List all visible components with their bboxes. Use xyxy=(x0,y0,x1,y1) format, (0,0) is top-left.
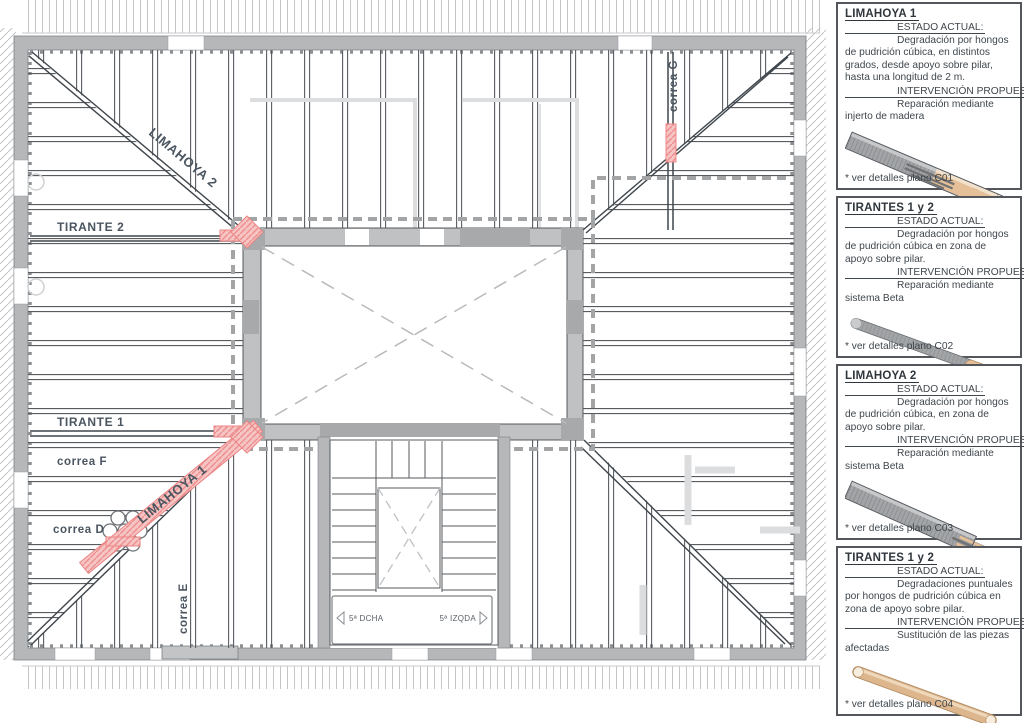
legend-card-tirantes-sustitucion: TIRANTES 1 y 2 ESTADO ACTUAL: Degradacio… xyxy=(836,546,1022,716)
estado-actual-text: Degradación por hongos de pudrición cúbi… xyxy=(845,35,1013,85)
label-correa-f: correa F xyxy=(57,456,107,468)
highlight-correa-g xyxy=(666,124,676,162)
stair-landing: 5ª DCHA 5ª IZQDA xyxy=(332,596,492,644)
beam-beta-illustration xyxy=(845,475,1015,551)
roof-plan-sheet: 5ª DCHA 5ª IZQDA LIMAHOYA 2 TIRANTE 2 TI… xyxy=(0,0,1024,689)
card-title: LIMAHOYA 2 xyxy=(845,370,919,383)
legend-card-limahoya-2: LIMAHOYA 2 ESTADO ACTUAL: Degradación po… xyxy=(836,364,1022,540)
intervencion-text: Sustitución de las piezas afectadas xyxy=(845,630,1013,655)
legend-card-limahoya-1: LIMAHOYA 1 ESTADO ACTUAL: Degradación po… xyxy=(836,2,1022,190)
highlight-correa-d xyxy=(106,537,140,546)
intervencion-heading: INTERVENCIÓN PROPUESTA: xyxy=(845,435,1024,447)
estado-actual-text: Degradaciones puntuales por hongos de pu… xyxy=(845,579,1013,616)
beam-graft-illustration xyxy=(845,126,1015,198)
card-footnote: * ver detalles plano C02 xyxy=(845,341,953,352)
card-title: LIMAHOYA 1 xyxy=(845,8,919,21)
estado-actual-heading: ESTADO ACTUAL: xyxy=(845,216,985,228)
tie-rod-beta-illustration xyxy=(845,307,1015,369)
card-footnote: * ver detalles plano C04 xyxy=(845,699,953,710)
courtyard-void-cross xyxy=(262,247,566,423)
label-tirante-1: TIRANTE 1 xyxy=(57,415,124,429)
estado-actual-text: Degradación por hongos de pudrición cúbi… xyxy=(845,397,1013,434)
intervencion-heading: INTERVENCIÓN PROPUESTA: xyxy=(845,617,1024,629)
estado-actual-heading: ESTADO ACTUAL: xyxy=(845,22,985,34)
roof-plan-svg: 5ª DCHA 5ª IZQDA LIMAHOYA 2 TIRANTE 2 TI… xyxy=(0,0,836,689)
card-footnote: * ver detalles plano C03 xyxy=(845,523,953,534)
intervencion-heading: INTERVENCIÓN PROPUESTA: xyxy=(845,86,1024,98)
stair-label-dcha: 5ª DCHA xyxy=(349,614,384,623)
stairwell: 5ª DCHA 5ª IZQDA xyxy=(318,437,510,648)
stair-label-izqda: 5ª IZQDA xyxy=(440,614,477,623)
legend-sidebar: LIMAHOYA 1 ESTADO ACTUAL: Degradación po… xyxy=(836,2,1022,716)
card-title: TIRANTES 1 y 2 xyxy=(845,552,937,565)
label-correa-d: correa D xyxy=(53,524,104,536)
intervencion-text: Reparación mediante sistema Beta xyxy=(845,280,1013,305)
intervencion-text: Reparación mediante injerto de madera xyxy=(845,99,1013,124)
estado-actual-heading: ESTADO ACTUAL: xyxy=(845,566,985,578)
estado-actual-text: Degradación por hongos de pudrición cúbi… xyxy=(845,229,1013,266)
intervencion-text: Reparación mediante sistema Beta xyxy=(845,448,1013,473)
label-tirante-2: TIRANTE 2 xyxy=(57,220,124,234)
label-correa-g: correa G xyxy=(668,60,680,112)
card-title: TIRANTES 1 y 2 xyxy=(845,202,937,215)
wood-tie-illustration xyxy=(845,657,1015,723)
label-correa-e: correa E xyxy=(178,583,190,634)
intervencion-heading: INTERVENCIÓN PROPUESTA: xyxy=(845,267,1024,279)
legend-card-tirantes-beta: TIRANTES 1 y 2 ESTADO ACTUAL: Degradació… xyxy=(836,196,1022,358)
plan-area: 5ª DCHA 5ª IZQDA LIMAHOYA 2 TIRANTE 2 TI… xyxy=(0,0,836,689)
card-footnote: * ver detalles plano C01 xyxy=(845,173,953,184)
estado-actual-heading: ESTADO ACTUAL: xyxy=(845,384,985,396)
courtyard xyxy=(243,228,583,440)
